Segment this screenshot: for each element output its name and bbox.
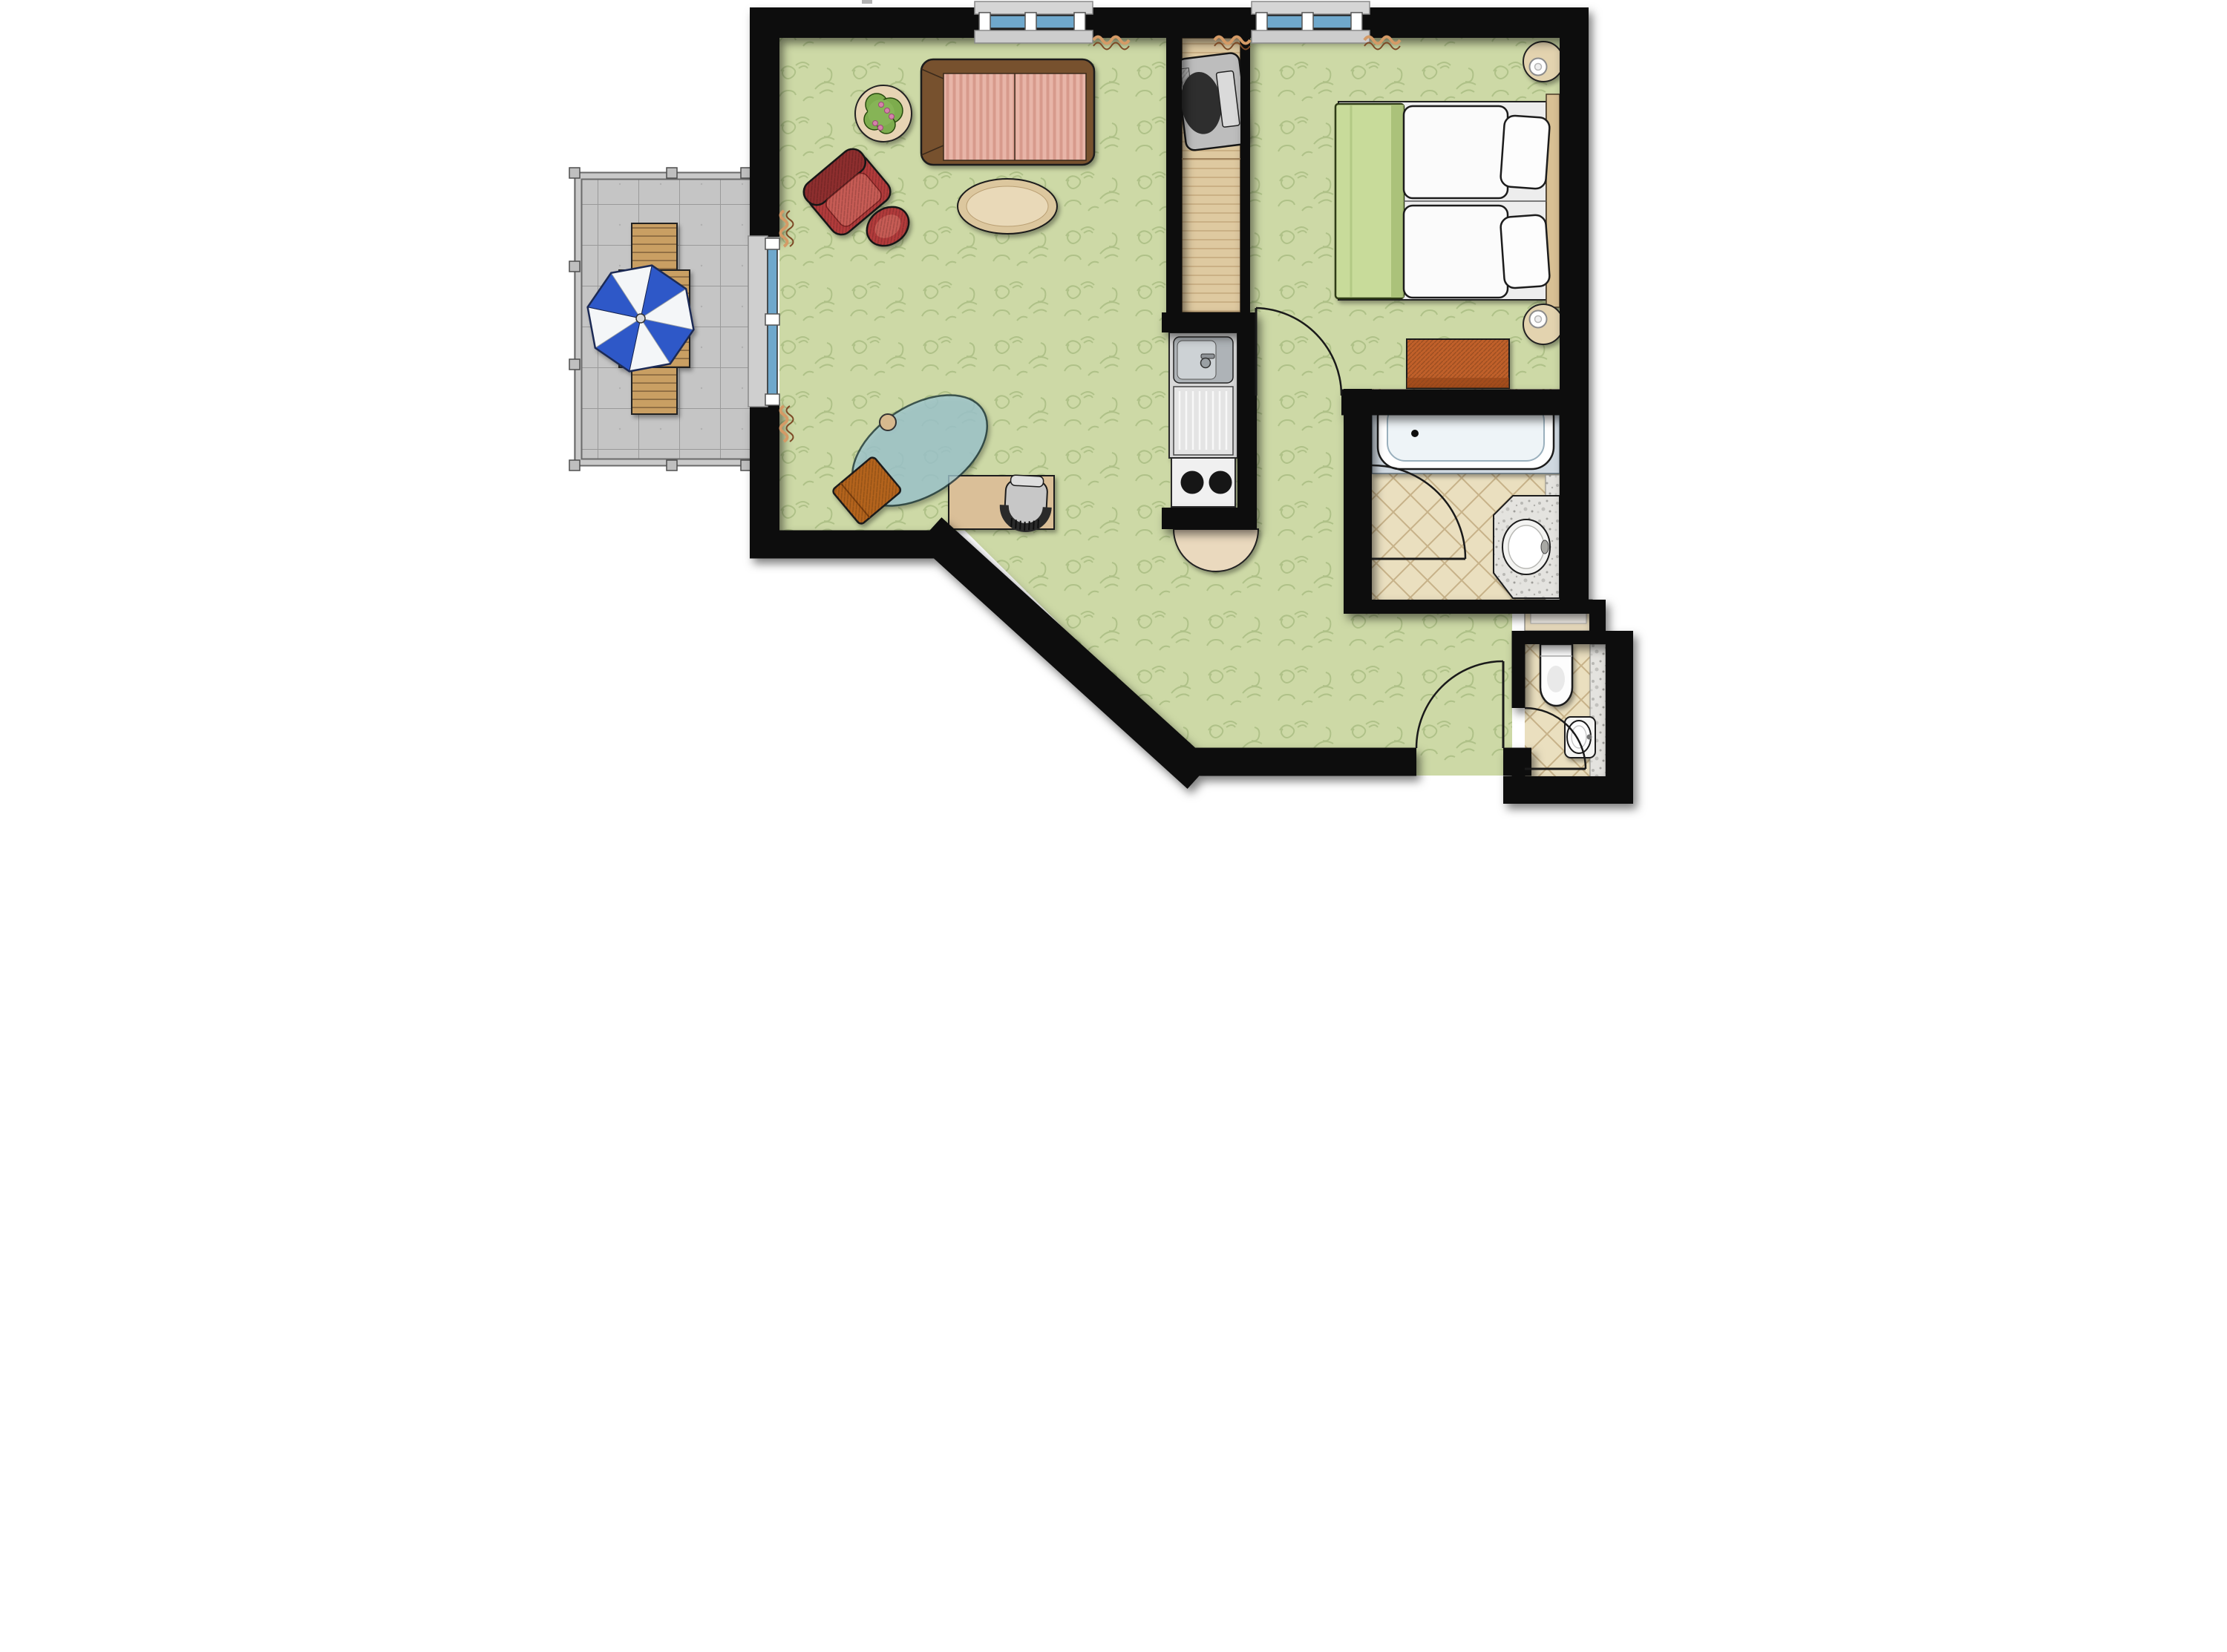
vent-line (1016, 519, 1016, 528)
vent-line (1011, 518, 1012, 527)
dresser-shadow-band (1407, 378, 1509, 388)
vanity-faucet (1541, 540, 1549, 554)
vent-line (1038, 519, 1039, 528)
vase (880, 414, 896, 430)
window-living-mullion (1074, 13, 1085, 31)
rail-post (741, 168, 751, 178)
floor-plan-stage (557, 0, 1670, 826)
patio-chair-bottom (632, 367, 677, 414)
lamp-top-ring (1535, 64, 1542, 71)
rail-post (569, 168, 580, 178)
lamp-bottom-ring (1535, 316, 1542, 323)
window-bedroom-mullion (1256, 13, 1267, 31)
wc-faucet (1587, 735, 1592, 740)
sink-bowl (1177, 341, 1216, 379)
balcony-door-mullion (765, 394, 779, 405)
stove-burner-right (1209, 471, 1232, 494)
bush-flower (885, 108, 890, 114)
bathtub-drain (1411, 430, 1419, 437)
duvet-top (1404, 106, 1508, 198)
pillow-top (1500, 115, 1551, 189)
balcony (569, 168, 751, 471)
office-chair (1003, 475, 1049, 532)
vent-line (1020, 521, 1021, 530)
rail-post (569, 359, 580, 370)
bush-flower (889, 114, 895, 119)
bush-flower (878, 125, 883, 131)
rail-post (667, 460, 677, 471)
window-living-mullion (979, 13, 990, 31)
microwave (1176, 52, 1249, 151)
window-living-inner-sill (975, 30, 1093, 43)
window-living-mullion (1025, 13, 1036, 31)
balcony-door-mullion (765, 314, 779, 325)
rail-post (667, 168, 677, 178)
pillow (1500, 115, 1551, 189)
drainboard (1174, 387, 1233, 455)
window-bedroom-inner-sill (1252, 30, 1370, 43)
bush-flower (879, 102, 884, 108)
vent-line (1029, 521, 1030, 530)
stove-burner-left (1181, 471, 1204, 494)
window-bedroom-mullion (1302, 13, 1313, 31)
rail-post (569, 460, 580, 471)
pillow-bottom (1500, 214, 1551, 289)
rail-post (741, 460, 751, 471)
vent-line (1024, 522, 1025, 531)
bed-blanket-band (1391, 105, 1404, 298)
pillow (1500, 214, 1551, 289)
vanity-basin-inner (1508, 525, 1544, 568)
bush-flower (873, 121, 878, 126)
balcony-door-sill (748, 236, 768, 407)
chair-headrest (1010, 475, 1044, 487)
coffee-table-top (967, 186, 1048, 226)
toilet-bowl (1547, 666, 1565, 692)
rail-post (569, 261, 580, 272)
duvet-bottom (1404, 206, 1508, 298)
floor-plan-canvas (557, 0, 1670, 826)
sink-faucet (1201, 358, 1211, 368)
vent-line (1033, 521, 1034, 530)
balcony-door-mullion (765, 238, 779, 249)
window-bedroom-mullion (1351, 13, 1362, 31)
patio-chair-top (632, 223, 677, 270)
sink-faucet-spout (1201, 354, 1214, 358)
parasol-hub (636, 314, 645, 323)
scan-artifact (862, 0, 872, 4)
wall-niche-block (1589, 600, 1606, 632)
sink-drainboard (1174, 387, 1233, 455)
